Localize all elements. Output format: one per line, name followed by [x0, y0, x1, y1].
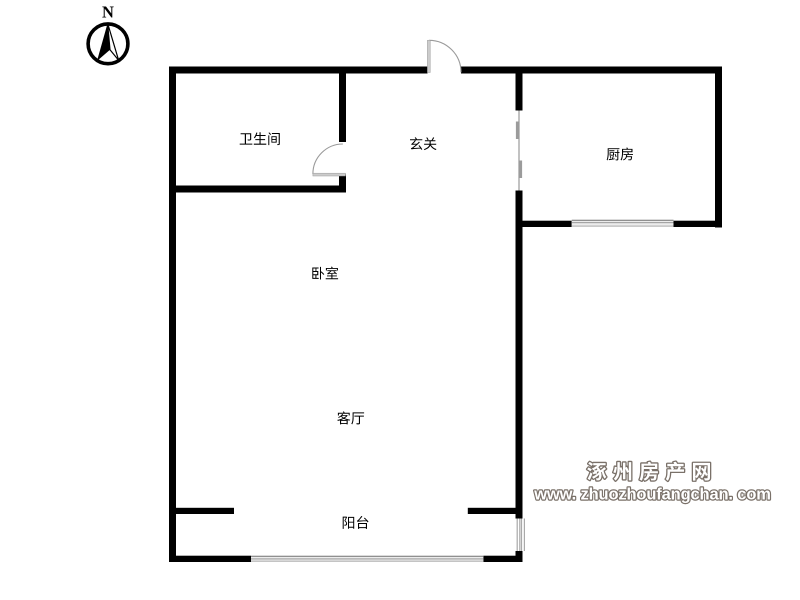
svg-text:N: N	[102, 3, 114, 22]
svg-text:www. zhuozhoufangchan. com: www. zhuozhoufangchan. com	[533, 486, 771, 504]
